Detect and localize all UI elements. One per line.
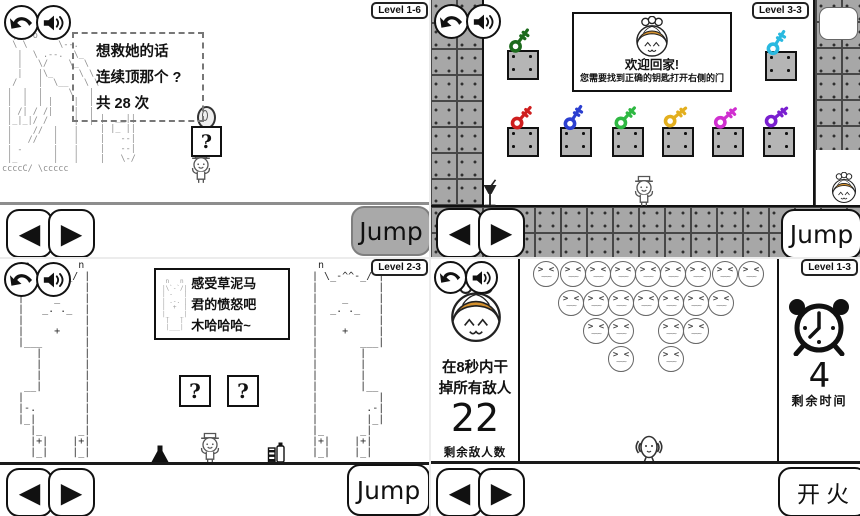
enemy-face: > <~~~	[660, 261, 686, 287]
instruction-line: 在8秒内干	[430, 358, 520, 379]
platform-block	[507, 127, 539, 157]
quadrant-level-1-3: 在8秒内干 掉所有敌人 22 剩余敌人数 > <~~~> <~~~> <~~~>…	[430, 258, 860, 516]
sound-button[interactable]	[36, 262, 71, 297]
back-icon	[439, 12, 464, 32]
hint-line: 共 28 次	[96, 91, 202, 117]
move-right-button[interactable]: ▶	[48, 468, 95, 516]
level-badge: Level 1-6	[371, 2, 428, 19]
question-block: ?	[191, 126, 222, 157]
back-icon	[9, 13, 34, 33]
welcome-dialog: 欢迎回家! 您需要找到正确的钥匙打开右侧的门	[572, 12, 732, 92]
enemy-face: > <~~~	[712, 261, 738, 287]
back-icon	[439, 268, 462, 287]
ascii-llama-right: n n | \_-^^-_/ | | | | _ | | _. ._ | | |…	[306, 260, 384, 458]
level-badge: Level 1-3	[801, 259, 858, 276]
player-character	[196, 432, 224, 464]
sound-button[interactable]	[36, 5, 71, 40]
sound-button[interactable]	[465, 261, 498, 294]
panel-divider-left	[518, 258, 520, 463]
ascii-llama-mini: n n |\`-`/| | - | | .-. | | + | |_ _| | …	[162, 279, 187, 331]
key-gold	[662, 102, 690, 130]
jump-button[interactable]: Jump	[351, 206, 430, 256]
princess-at-door	[829, 172, 859, 204]
enemy-face: > <~~~	[658, 318, 684, 344]
alarm-clock-icon	[782, 296, 856, 356]
dialog-title: 欢迎回家!	[574, 58, 730, 72]
ground-line	[0, 202, 430, 205]
speaker-icon	[471, 268, 493, 288]
move-left-button[interactable]: ◀	[6, 468, 53, 516]
hint-dialog: 想救她的话 连续顶那个 ? 共 28 次	[72, 32, 204, 122]
princess-icon	[632, 16, 672, 58]
taunt-dialog: n n |\`-`/| | - | | .-. | | + | |_ _| | …	[154, 268, 290, 340]
key-dark-green	[505, 25, 535, 55]
taunt-line: 君的愤怒吧	[191, 294, 256, 315]
speaker-icon	[472, 11, 496, 33]
jump-button[interactable]: Jump	[781, 209, 860, 258]
platform-block	[662, 127, 694, 157]
move-right-button[interactable]: ▶	[478, 468, 525, 516]
move-right-button[interactable]: ▶	[478, 208, 525, 258]
dialog-subtitle: 您需要找到正确的钥匙打开右侧的门	[574, 72, 730, 85]
sound-button[interactable]	[466, 4, 501, 39]
question-block: ?	[179, 375, 211, 407]
enemy-face: > <~~~	[585, 261, 611, 287]
platform-block	[763, 127, 795, 157]
enemy-face: > <~~~	[608, 346, 634, 372]
enemy-face: > <~~~	[583, 290, 609, 316]
enemy-face: > <~~~	[658, 290, 684, 316]
ground-line	[430, 461, 860, 464]
back-button[interactable]	[434, 261, 467, 294]
enemy-face: > <~~~	[608, 290, 634, 316]
player-character	[632, 434, 666, 464]
speaker-icon	[42, 269, 66, 291]
enemies-remaining-label: 剩余敌人数	[430, 444, 520, 460]
key-red	[508, 103, 537, 132]
enemy-face: > <~~~	[608, 318, 634, 344]
enemy-face: > <~~~	[610, 261, 636, 287]
platform-block	[612, 127, 644, 157]
level-badge: Level 3-3	[752, 2, 809, 19]
enemy-face: > <~~~	[635, 261, 661, 287]
back-button[interactable]	[434, 4, 469, 39]
question-block: ?	[227, 375, 259, 407]
time-remaining-count: 4	[779, 356, 860, 396]
enemy-face: > <~~~	[560, 261, 586, 287]
enemy-face: > <~~~	[533, 261, 559, 287]
player-character	[630, 175, 658, 207]
enemy-face: > <~~~	[685, 261, 711, 287]
wall-window	[819, 7, 858, 40]
enemy-face: > <~~~	[683, 290, 709, 316]
back-icon	[9, 270, 34, 290]
time-remaining-label: 剩余时间	[779, 392, 860, 409]
move-left-button[interactable]: ◀	[6, 209, 53, 258]
hint-line: 想救她的话	[96, 39, 202, 65]
enemy-face: > <~~~	[558, 290, 584, 316]
hint-line: 连续顶那个 ?	[96, 65, 202, 91]
quadrant-level-1-6: /| |-| |_| o o\_ \ \ \--. | \ .--. \_ | …	[0, 0, 430, 258]
enemy-face: > <~~~	[738, 261, 764, 287]
platform-block	[712, 127, 744, 157]
screenshot-grid: /| |-| |_| o o\_ \ \ \--. | \ .--. \_ | …	[0, 0, 860, 516]
wine-glass	[482, 179, 498, 207]
key-magenta	[713, 104, 740, 131]
quadrant-level-2-3: n n | \_-^^-_/ | | | | _ | | _. ._ | | |…	[0, 258, 430, 516]
speaker-icon	[42, 12, 66, 34]
move-right-button[interactable]: ▶	[48, 209, 95, 258]
bottle	[266, 441, 286, 463]
enemy-face: > <~~~	[683, 318, 709, 344]
level-badge: Level 2-3	[371, 259, 428, 276]
back-button[interactable]	[4, 262, 39, 297]
taunt-line: 感受草泥马	[191, 273, 256, 294]
enemy-face: > <~~~	[708, 290, 734, 316]
enemy-face: > <~~~	[583, 318, 609, 344]
key-green	[612, 103, 640, 131]
move-left-button[interactable]: ◀	[436, 468, 483, 516]
fire-button[interactable]: 开火	[778, 467, 860, 516]
enemies-remaining-count: 22	[430, 396, 520, 440]
enemy-face: > <~~~	[633, 290, 659, 316]
panel-divider-right	[777, 258, 779, 463]
enemy-face: > <~~~	[658, 346, 684, 372]
grid-separator-horizontal	[0, 257, 860, 259]
move-left-button[interactable]: ◀	[436, 208, 483, 258]
quadrant-level-3-3: 欢迎回家! 您需要找到正确的钥匙打开右侧的门 Level 3-3 ◀ ▶ Jum…	[430, 0, 860, 258]
jump-button[interactable]: Jump	[347, 464, 430, 516]
taunt-line: 木哈哈哈~	[191, 315, 256, 336]
back-button[interactable]	[4, 5, 39, 40]
flask	[150, 444, 170, 463]
key-purple	[763, 102, 791, 130]
